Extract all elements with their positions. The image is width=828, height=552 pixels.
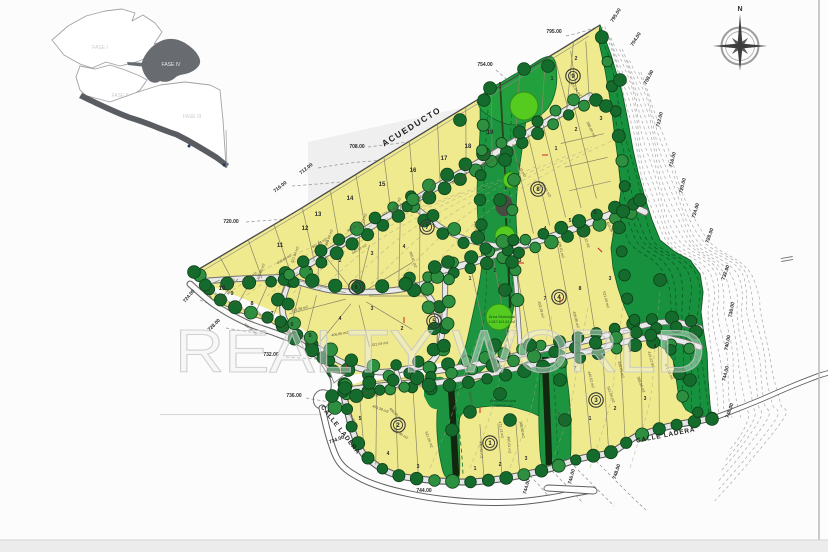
svg-text:2: 2 [575,56,578,62]
svg-text:15: 15 [379,182,386,188]
svg-text:4: 4 [544,226,547,232]
svg-text:2: 2 [339,258,342,264]
svg-text:736.00: 736.00 [286,393,302,399]
svg-text:3: 3 [609,276,612,282]
svg-text:FASE II: FASE II [112,93,129,99]
svg-text:1: 1 [309,266,312,272]
svg-text:6: 6 [594,210,597,216]
svg-text:N: N [737,6,742,13]
svg-text:18: 18 [465,144,472,150]
svg-text:12: 12 [302,226,309,232]
svg-text:3: 3 [371,251,374,257]
svg-text:17: 17 [441,156,448,162]
svg-text:3: 3 [417,464,420,470]
svg-text:708.00: 708.00 [349,144,365,150]
svg-text:1: 1 [469,276,472,282]
svg-text:2: 2 [499,462,502,468]
svg-text:Área Municipal: Área Municipal [490,398,517,403]
svg-text:8: 8 [250,301,253,307]
svg-text:720.00: 720.00 [223,219,239,225]
svg-text:2: 2 [614,406,617,412]
svg-text:REALTY WORLD: REALTY WORLD [175,318,705,385]
svg-text:3: 3 [519,258,522,264]
svg-text:3: 3 [644,396,647,402]
svg-text:5: 5 [569,218,572,224]
svg-text:3: 3 [600,116,603,122]
svg-text:754.00: 754.00 [477,62,493,68]
svg-text:FASE III: FASE III [183,114,201,120]
svg-text:FASE I: FASE I [92,45,108,51]
svg-text:2: 2 [494,268,497,274]
svg-text:8: 8 [579,286,582,292]
svg-text:11: 11 [277,243,284,249]
svg-text:3: 3 [371,306,374,312]
svg-text:19: 19 [487,130,494,136]
svg-text:1: 1 [474,466,477,472]
svg-text:FASE IV: FASE IV [162,62,182,68]
svg-text:3: 3 [525,456,528,462]
svg-text:4.350,61 m2: 4.350,61 m2 [493,404,513,408]
svg-text:744.00: 744.00 [416,488,432,494]
svg-text:2: 2 [575,127,578,133]
svg-text:10: 10 [219,286,226,292]
svg-text:1: 1 [589,416,592,422]
svg-text:7: 7 [270,311,273,317]
svg-text:14: 14 [347,196,354,202]
svg-text:5: 5 [359,416,362,422]
svg-text:4: 4 [403,244,406,250]
svg-text:4: 4 [387,451,390,457]
svg-text:7: 7 [544,296,547,302]
svg-text:16: 16 [410,168,417,174]
svg-text:13: 13 [315,212,322,218]
svg-text:1: 1 [551,76,554,82]
svg-text:1: 1 [555,146,558,152]
svg-text:795.00: 795.00 [546,29,562,35]
